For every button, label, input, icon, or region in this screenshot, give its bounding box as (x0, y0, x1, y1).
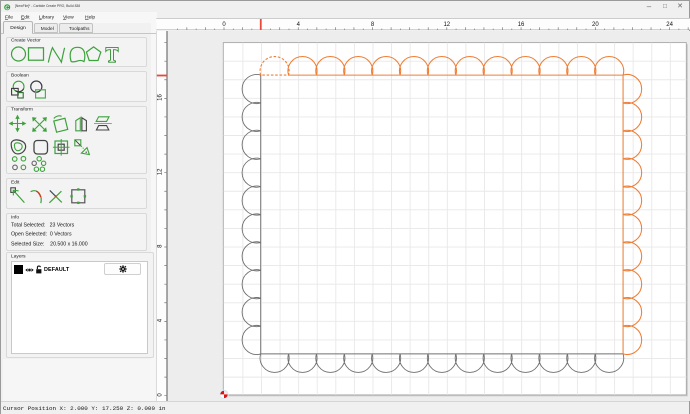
svg-text:16: 16 (157, 93, 163, 100)
svg-text:C: C (5, 5, 9, 11)
svg-text:12: 12 (157, 167, 163, 174)
svg-text:20: 20 (592, 22, 599, 28)
svg-text:16: 16 (518, 22, 525, 28)
svg-text:12: 12 (443, 22, 450, 28)
svg-text:24: 24 (666, 22, 673, 28)
